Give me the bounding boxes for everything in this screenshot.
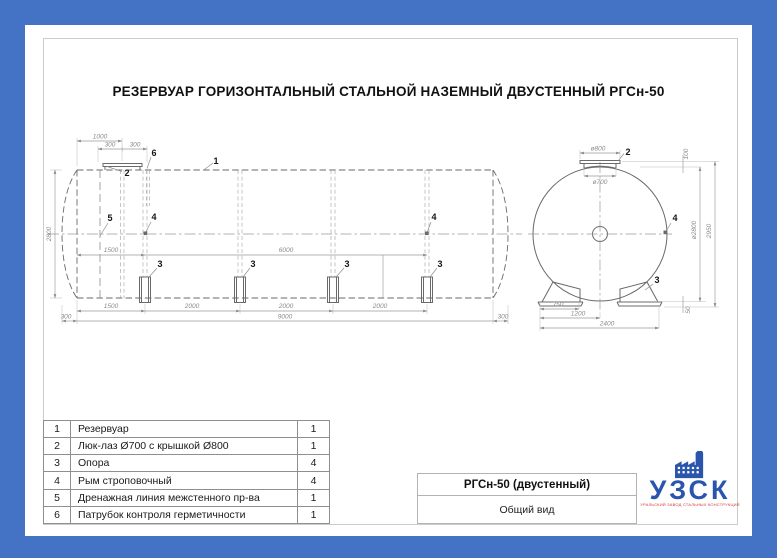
dim-300-left: 300 xyxy=(105,142,116,149)
dim-1500-mid: 1500 xyxy=(104,247,119,254)
part-name: Опора xyxy=(71,455,298,472)
callout-lug-end: 4 xyxy=(672,213,677,223)
callout-lug-left: 4 xyxy=(151,212,156,222)
callout-manhole-side: 2 xyxy=(124,168,129,178)
part-number: 1 xyxy=(44,421,71,438)
table-row: 3 Опора 4 xyxy=(44,455,330,472)
part-name: Дренажная линия межстенного пр-ва xyxy=(71,489,298,506)
table-row: 6 Патрубок контроля герметичности 1 xyxy=(44,506,330,523)
dim-300-overhang-left: 300 xyxy=(61,314,72,321)
callout-support-1: 3 xyxy=(157,259,162,269)
part-name: Люк-лаз Ø700 с крышкой Ø800 xyxy=(71,438,298,455)
dimensions-side: 1000 300 300 2800 1500 6000 xyxy=(46,134,509,325)
dim-2000-a: 2000 xyxy=(184,303,200,310)
side-view: 1000 300 300 2800 1500 6000 xyxy=(46,134,522,325)
table-row: 2 Люк-лаз Ø700 с крышкой Ø800 1 xyxy=(44,438,330,455)
callout-lug-right: 4 xyxy=(431,212,436,222)
parts-table: 1 Резервуар 1 2 Люк-лаз Ø700 с крышкой Ø… xyxy=(43,420,330,524)
part-number: 6 xyxy=(44,506,71,523)
uzsk-logo: УЗСК УРАЛЬСКИЙ ЗАВОД СТАЛЬНЫХ КОНСТРУКЦИ… xyxy=(638,450,742,507)
part-number: 2 xyxy=(44,438,71,455)
dim-50: 50 xyxy=(685,306,692,314)
callout-support-2: 3 xyxy=(250,259,255,269)
title-block-model: РГСн-50 (двустенный) xyxy=(417,473,637,496)
dim-300-right: 300 xyxy=(130,142,141,149)
part-number: 5 xyxy=(44,489,71,506)
callout-tank: 1 xyxy=(213,156,218,166)
callout-support-3: 3 xyxy=(344,259,349,269)
end-view: ø800 ø700 100 ø2800 2950 50 xyxy=(528,146,719,332)
callouts-side: 1 2 6 5 4 4 3 3 3 3 xyxy=(100,148,443,277)
table-row: 4 Рым строповочный 4 xyxy=(44,472,330,489)
dim-300-overhang-right: 300 xyxy=(498,314,509,321)
dim-2000-c: 2000 xyxy=(372,303,388,310)
dim-100: 100 xyxy=(683,148,690,159)
part-qty: 1 xyxy=(298,489,330,506)
title-block-view: Общий вид xyxy=(417,495,637,524)
logo-name: УЗСК xyxy=(638,480,742,500)
callout-drain-line: 5 xyxy=(107,213,112,223)
part-name: Рым строповочный xyxy=(71,472,298,489)
dim-d700: ø700 xyxy=(593,179,608,186)
dim-2400: 2400 xyxy=(599,321,615,328)
part-qty: 4 xyxy=(298,455,330,472)
dim-9000: 9000 xyxy=(278,314,293,321)
dim-d800: ø800 xyxy=(591,146,606,153)
part-number: 3 xyxy=(44,455,71,472)
callout-cover-end: 2 xyxy=(625,147,630,157)
dim-d2800: ø2800 xyxy=(691,220,698,239)
dim-6000: 6000 xyxy=(279,247,294,254)
part-qty: 1 xyxy=(298,438,330,455)
logo-tagline: УРАЛЬСКИЙ ЗАВОД СТАЛЬНЫХ КОНСТРУКЦИЙ xyxy=(638,502,742,507)
callout-support-end: 3 xyxy=(654,275,659,285)
callouts-end: 2 4 3 xyxy=(619,147,678,290)
dim-2950: 2950 xyxy=(706,223,713,239)
slide-background: РЕЗЕРВУАР ГОРИЗОНТАЛЬНЫЙ СТАЛЬНОЙ НАЗЕМН… xyxy=(0,0,777,558)
part-number: 4 xyxy=(44,472,71,489)
callout-control-nozzle: 6 xyxy=(151,148,156,158)
part-name: Патрубок контроля герметичности xyxy=(71,506,298,523)
table-row: 5 Дренажная линия межстенного пр-ва 1 xyxy=(44,489,330,506)
dim-1000: 1000 xyxy=(93,134,108,141)
callout-support-4: 3 xyxy=(437,259,442,269)
dim-2800: 2800 xyxy=(46,226,53,242)
tank-outline xyxy=(48,170,522,298)
part-qty: 1 xyxy=(298,421,330,438)
table-row: 1 Резервуар 1 xyxy=(44,421,330,438)
dim-1200: 1200 xyxy=(571,311,586,318)
part-name: Резервуар xyxy=(71,421,298,438)
part-qty: 4 xyxy=(298,472,330,489)
dim-750: 750 xyxy=(553,302,564,309)
supports-side xyxy=(140,277,433,303)
part-qty: 1 xyxy=(298,506,330,523)
dim-1500-bottom: 1500 xyxy=(104,303,119,310)
dim-2000-b: 2000 xyxy=(278,303,294,310)
